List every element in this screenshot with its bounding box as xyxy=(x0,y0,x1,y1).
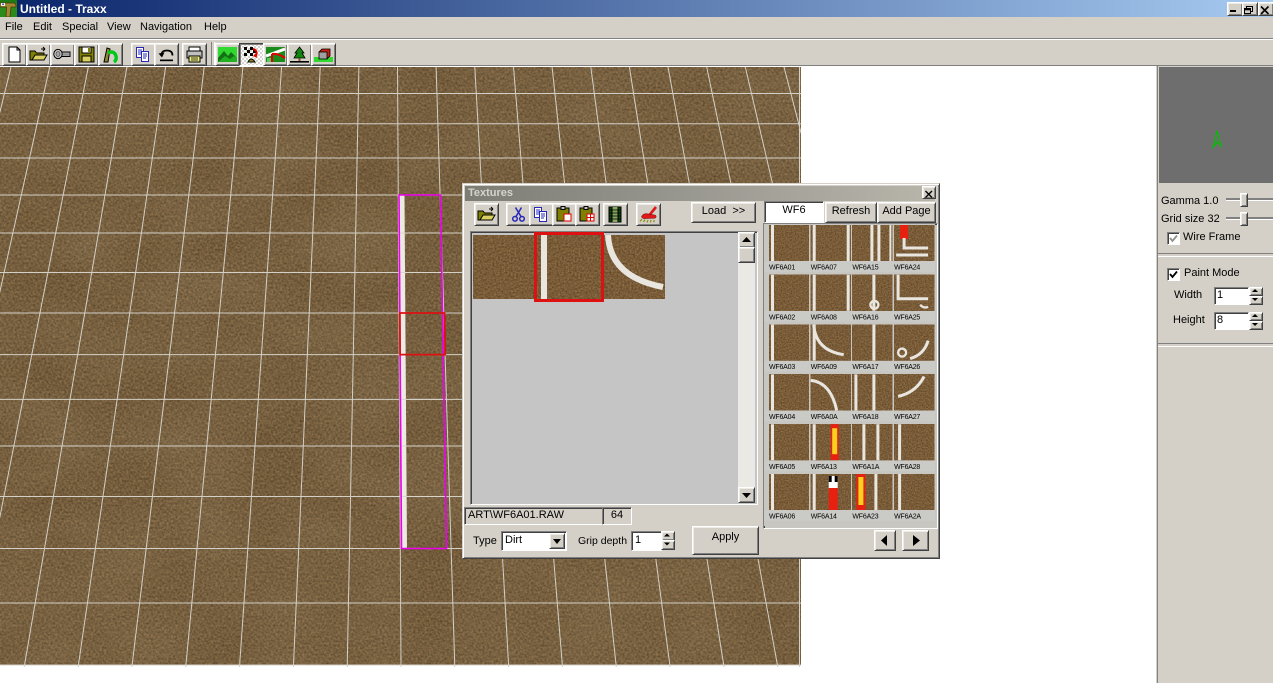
svg-text:WF6A16: WF6A16 xyxy=(852,314,878,321)
svg-text:WF6A01: WF6A01 xyxy=(769,265,795,272)
svg-text:WF6A28: WF6A28 xyxy=(894,464,920,471)
svg-text:WF6A2A: WF6A2A xyxy=(894,514,921,521)
svg-text:WF6A25: WF6A25 xyxy=(894,314,920,321)
svg-text:WF6A15: WF6A15 xyxy=(852,265,878,272)
svg-text:WF6A07: WF6A07 xyxy=(811,265,837,272)
svg-text:WF6A26: WF6A26 xyxy=(894,364,920,371)
svg-text:WF6A24: WF6A24 xyxy=(894,265,920,272)
svg-text:WF6A05: WF6A05 xyxy=(769,464,795,471)
svg-text:WF6A13: WF6A13 xyxy=(811,464,837,471)
svg-text:WF6A17: WF6A17 xyxy=(852,364,878,371)
svg-text:WF6A06: WF6A06 xyxy=(769,514,795,521)
svg-text:WF6A23: WF6A23 xyxy=(852,514,878,521)
svg-text:WF6A03: WF6A03 xyxy=(769,364,795,371)
svg-text:WF6A1A: WF6A1A xyxy=(852,464,879,471)
svg-text:WF6A09: WF6A09 xyxy=(811,364,837,371)
svg-text:WF6A18: WF6A18 xyxy=(852,414,878,421)
svg-text:WF6A04: WF6A04 xyxy=(769,414,795,421)
svg-text:WF6A27: WF6A27 xyxy=(894,414,920,421)
svg-text:WF6A14: WF6A14 xyxy=(811,514,837,521)
svg-text:WF6A08: WF6A08 xyxy=(811,314,837,321)
svg-text:WF6A0A: WF6A0A xyxy=(811,414,838,421)
svg-text:WF6A02: WF6A02 xyxy=(769,314,795,321)
